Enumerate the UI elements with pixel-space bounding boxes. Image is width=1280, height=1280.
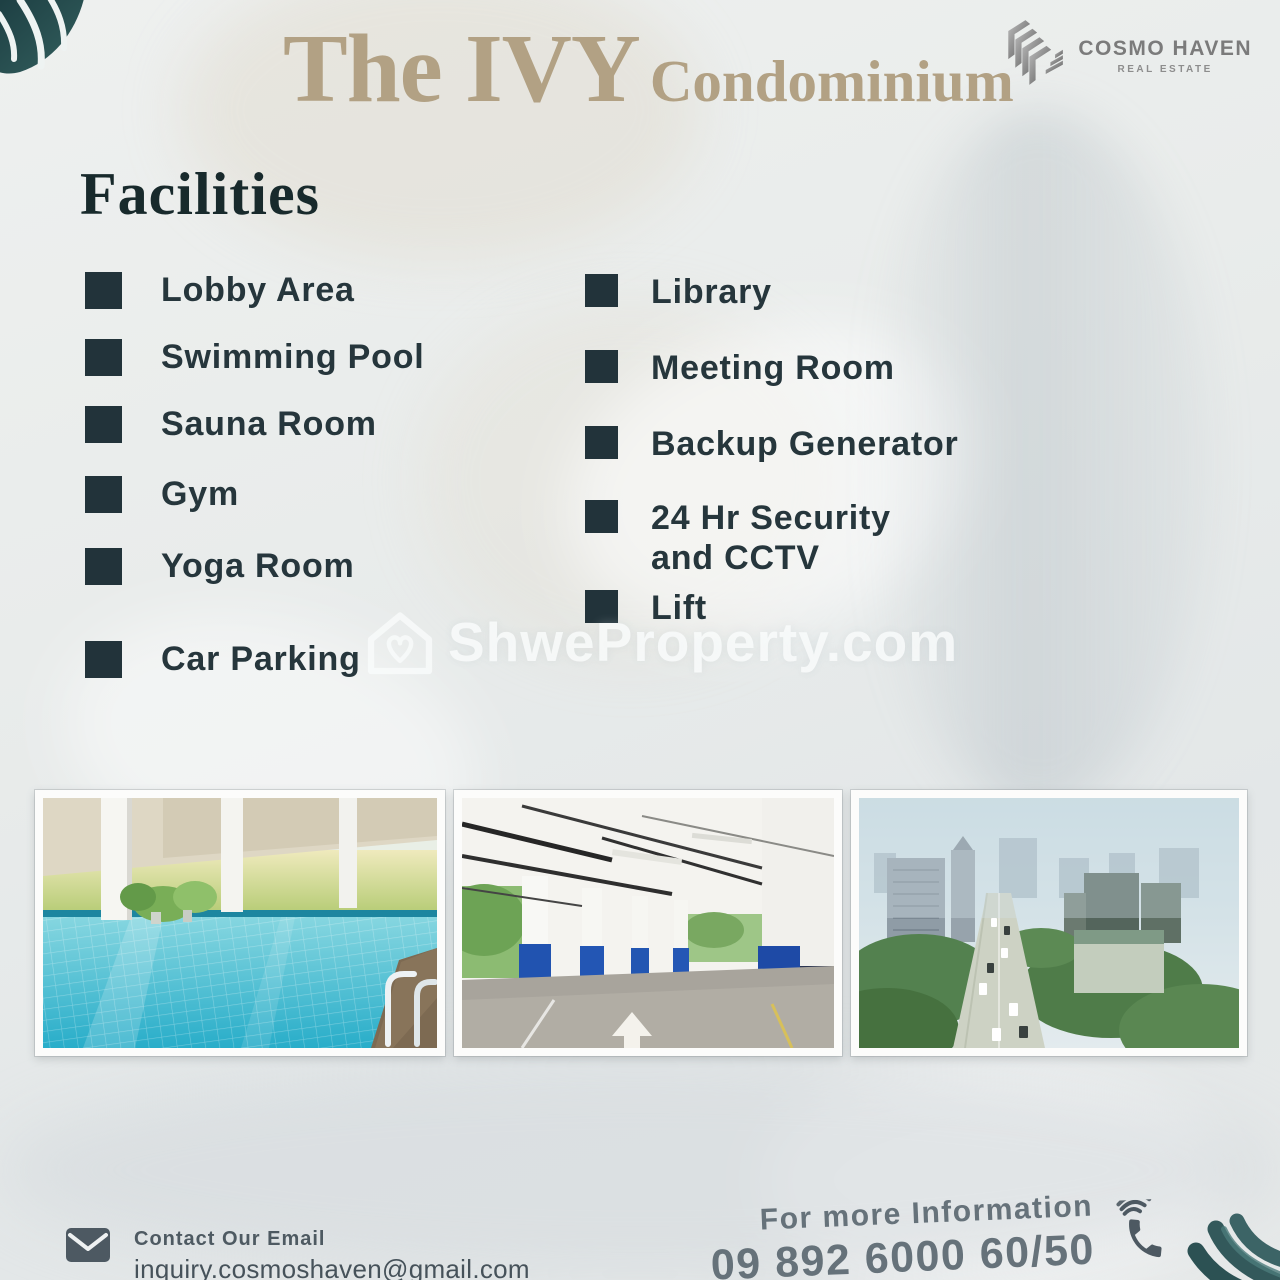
contact-email-texts: Contact Our Email inquiry.cosmoshaven@gm… <box>134 1228 530 1280</box>
facility-item: Lobby Area <box>85 270 425 310</box>
bullet-square-icon <box>85 641 122 678</box>
facility-label: Swimming Pool <box>161 337 425 377</box>
facility-label: Meeting Room <box>651 348 895 388</box>
cosmo-haven-logo: COSMO HAVEN REAL ESTATE <box>988 16 1252 96</box>
facility-item: Swimming Pool <box>85 337 425 377</box>
contact-phone-texts: For more Information 09 892 6000 60/50 <box>708 1190 1095 1280</box>
facility-item: Yoga Room <box>85 546 425 586</box>
facility-label: 24 Hr Security and CCTV <box>651 498 931 578</box>
bullet-square-icon <box>585 426 618 459</box>
logo-text: COSMO HAVEN REAL ESTATE <box>1078 37 1252 75</box>
shweproperty-watermark: ShweProperty.com <box>362 608 958 676</box>
facility-item: Gym <box>85 474 425 514</box>
facility-item: Library <box>585 272 959 312</box>
house-heart-icon <box>362 608 438 676</box>
car-parking-image <box>462 798 834 1048</box>
title-main: The IVY <box>283 18 640 120</box>
facility-item: 24 Hr Security and CCTV <box>585 498 959 578</box>
page-title: The IVY Condominium <box>283 18 1014 120</box>
envelope-icon <box>66 1228 110 1262</box>
facility-item: Meeting Room <box>585 348 959 388</box>
title-sub: Condominium <box>650 47 1014 116</box>
photo-strip <box>35 790 1247 1056</box>
bullet-square-icon <box>85 406 122 443</box>
facility-label: Gym <box>161 474 239 514</box>
facility-label: Sauna Room <box>161 404 377 444</box>
bullet-square-icon <box>85 476 122 513</box>
palm-leaf-decoration <box>1130 1173 1280 1280</box>
facilities-column-right: Library Meeting Room Backup Generator 24… <box>585 272 959 664</box>
facility-label: Lobby Area <box>161 270 355 310</box>
facility-item: Sauna Room <box>85 404 425 444</box>
flyer-canvas: The IVY Condominium COSMO HAVEN REAL ES <box>0 0 1280 1280</box>
monstera-leaf-decoration <box>0 0 146 114</box>
logo-tagline: REAL ESTATE <box>1118 64 1213 75</box>
bullet-square-icon <box>85 272 122 309</box>
facility-label: Library <box>651 272 772 312</box>
swimming-pool-photo <box>35 790 445 1056</box>
facility-label: Car Parking <box>161 639 361 679</box>
swimming-pool-image <box>43 798 437 1048</box>
logo-name: COSMO HAVEN <box>1078 37 1252 61</box>
facility-label: Yoga Room <box>161 546 355 586</box>
email-label: Contact Our Email <box>134 1228 530 1251</box>
bullet-square-icon <box>585 350 618 383</box>
city-view-image <box>859 798 1239 1048</box>
contact-email-block: Contact Our Email inquiry.cosmoshaven@gm… <box>66 1228 530 1280</box>
email-address: inquiry.cosmoshaven@gmail.com <box>134 1254 530 1280</box>
cosmo-haven-logo-icon <box>988 16 1066 96</box>
bullet-square-icon <box>85 339 122 376</box>
facilities-heading: Facilities <box>80 160 320 229</box>
city-view-photo <box>851 790 1247 1056</box>
facility-label: Backup Generator <box>651 424 959 464</box>
facility-item: Backup Generator <box>585 424 959 464</box>
bullet-square-icon <box>585 274 618 307</box>
bullet-square-icon <box>85 548 122 585</box>
watermark-text: ShweProperty.com <box>448 610 958 674</box>
car-parking-photo <box>454 790 842 1056</box>
bullet-square-icon <box>585 500 618 533</box>
